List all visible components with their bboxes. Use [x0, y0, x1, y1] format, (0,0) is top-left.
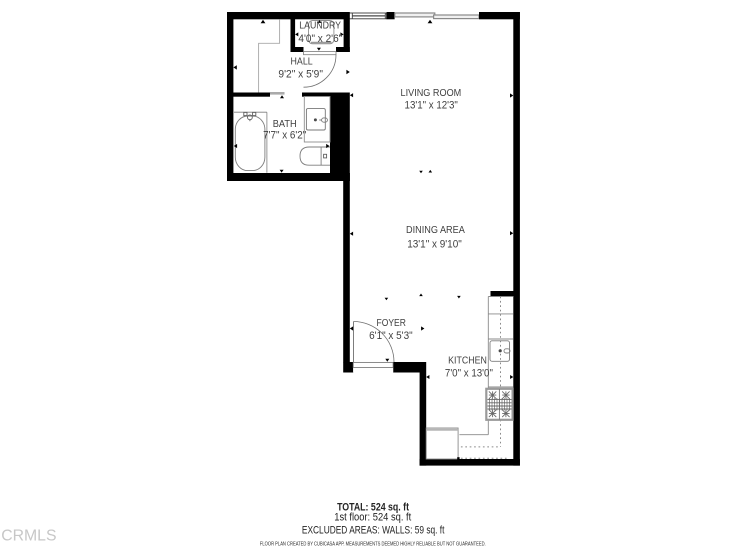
svg-text:4'0" x 2'6": 4'0" x 2'6": [298, 32, 342, 45]
svg-text:HALL: HALL: [291, 56, 313, 66]
svg-text:EXCLUDED AREAS: WALLS: 59 sq.: EXCLUDED AREAS: WALLS: 59 sq. ft: [302, 524, 445, 536]
svg-text:7'0" x 13'0": 7'0" x 13'0": [445, 368, 493, 380]
svg-text:LAUNDRY: LAUNDRY: [299, 20, 341, 30]
svg-text:CRMLS: CRMLS: [1, 527, 56, 544]
svg-text:BATH: BATH: [273, 119, 297, 130]
svg-text:FOYER: FOYER: [377, 318, 407, 329]
svg-text:DINING AREA: DINING AREA: [406, 224, 466, 235]
svg-text:LIVING ROOM: LIVING ROOM: [401, 87, 462, 98]
svg-text:7'7" x 6'2": 7'7" x 6'2": [263, 130, 306, 142]
svg-text:1st floor: 524 sq. ft: 1st floor: 524 sq. ft: [334, 512, 411, 524]
svg-text:13'1" x 12'3": 13'1" x 12'3": [405, 100, 459, 112]
svg-text:FLOOR PLAN CREATED BY CUBICASA: FLOOR PLAN CREATED BY CUBICASA APP. MEAS…: [260, 541, 486, 547]
svg-text:13'1" x 9'10": 13'1" x 9'10": [407, 239, 462, 251]
svg-text:9'2" x 5'9": 9'2" x 5'9": [278, 68, 323, 80]
svg-text:6'1" x 5'3": 6'1" x 5'3": [369, 331, 413, 343]
svg-text:KITCHEN: KITCHEN: [448, 355, 487, 365]
